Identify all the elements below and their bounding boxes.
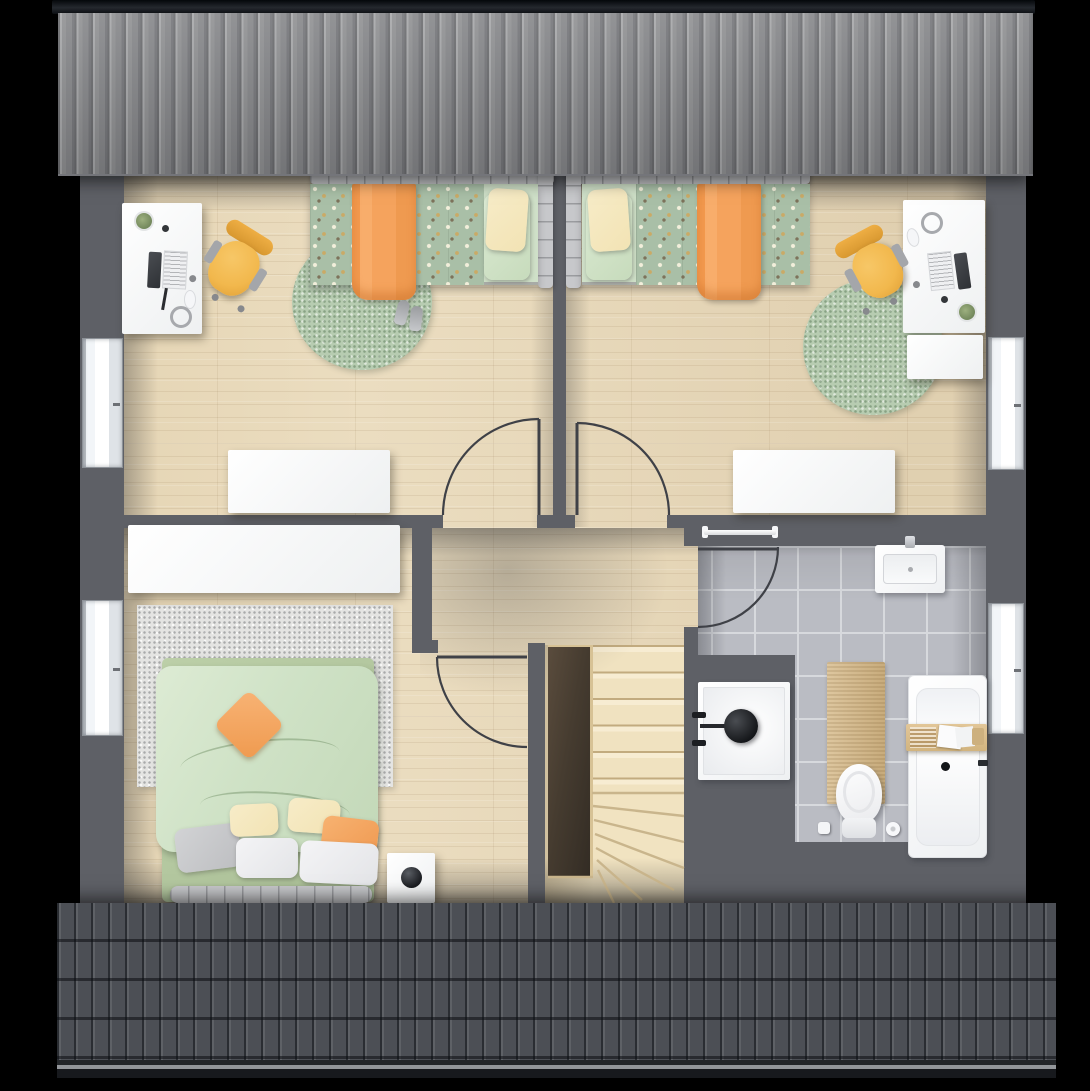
master-headboard (170, 886, 372, 903)
toilet-base (842, 818, 876, 838)
mouse-icon-right (905, 227, 922, 248)
desk-left (122, 203, 202, 334)
winder-stair-lines (548, 793, 684, 903)
towel-rail-bar (704, 530, 776, 535)
washbasin (875, 545, 945, 593)
door-arc-master (437, 657, 527, 747)
shower-tray (698, 682, 790, 780)
desk-plant-icon (959, 304, 975, 320)
dresser-left (228, 450, 390, 513)
headphones-icon-right (921, 212, 943, 234)
roof-slope-top (58, 13, 1033, 176)
pillow-cream-right (587, 188, 631, 253)
shower-head-icon (724, 709, 758, 743)
orange-blanket-left (352, 184, 416, 300)
desk-right (903, 200, 985, 333)
side-cabinet-right (907, 335, 983, 379)
wardrobe (128, 525, 400, 593)
headphones-icon-left (170, 306, 192, 328)
desk-plant-icon (136, 213, 152, 229)
master-pillow-cream (229, 803, 279, 837)
phone-icon (954, 252, 972, 289)
laptop-screen-left (147, 252, 162, 289)
roof-slope-bottom (57, 903, 1056, 1060)
door-arc-bedroom-right (577, 423, 669, 515)
orange-blanket-right (697, 184, 761, 300)
floor-plan (0, 0, 1090, 1091)
laptop-keyboard-left (162, 250, 188, 289)
pillow-cream-left (485, 188, 529, 253)
plant-ball (401, 867, 422, 888)
tub-faucet-icon (978, 760, 988, 766)
roof-gutter-edge (57, 1060, 1056, 1078)
door-arc-bathroom (698, 547, 778, 627)
master-pillow-white (236, 838, 298, 878)
sink-tap-icon (905, 536, 915, 548)
towel-rail (702, 526, 778, 538)
chair-caster (188, 274, 198, 284)
laptop-keyboard-right (927, 251, 955, 291)
nightstand (387, 853, 435, 903)
toilet (834, 764, 884, 840)
basin-drain (908, 567, 913, 572)
desk-dot (941, 296, 948, 303)
dresser-right (733, 450, 895, 513)
desk-lamp-dot (162, 225, 169, 232)
shower-valve (692, 712, 706, 718)
bed-headboard-right (566, 167, 581, 288)
bath-caddy (906, 724, 987, 751)
toilet-roll (886, 822, 900, 836)
door-arc-bedroom-left (443, 419, 539, 515)
bathtub (908, 675, 987, 858)
pen-icon (161, 288, 168, 310)
toilet-seat-ring (843, 771, 875, 813)
brush-cup (818, 822, 830, 834)
shower-valve (692, 740, 706, 746)
bed-headboard-left (538, 167, 553, 288)
tub-drain (941, 762, 950, 771)
caddy-soap (972, 728, 984, 745)
caddy-slats (910, 727, 936, 748)
roof-ridge-top (52, 0, 1035, 14)
master-pillow-white (299, 840, 379, 886)
